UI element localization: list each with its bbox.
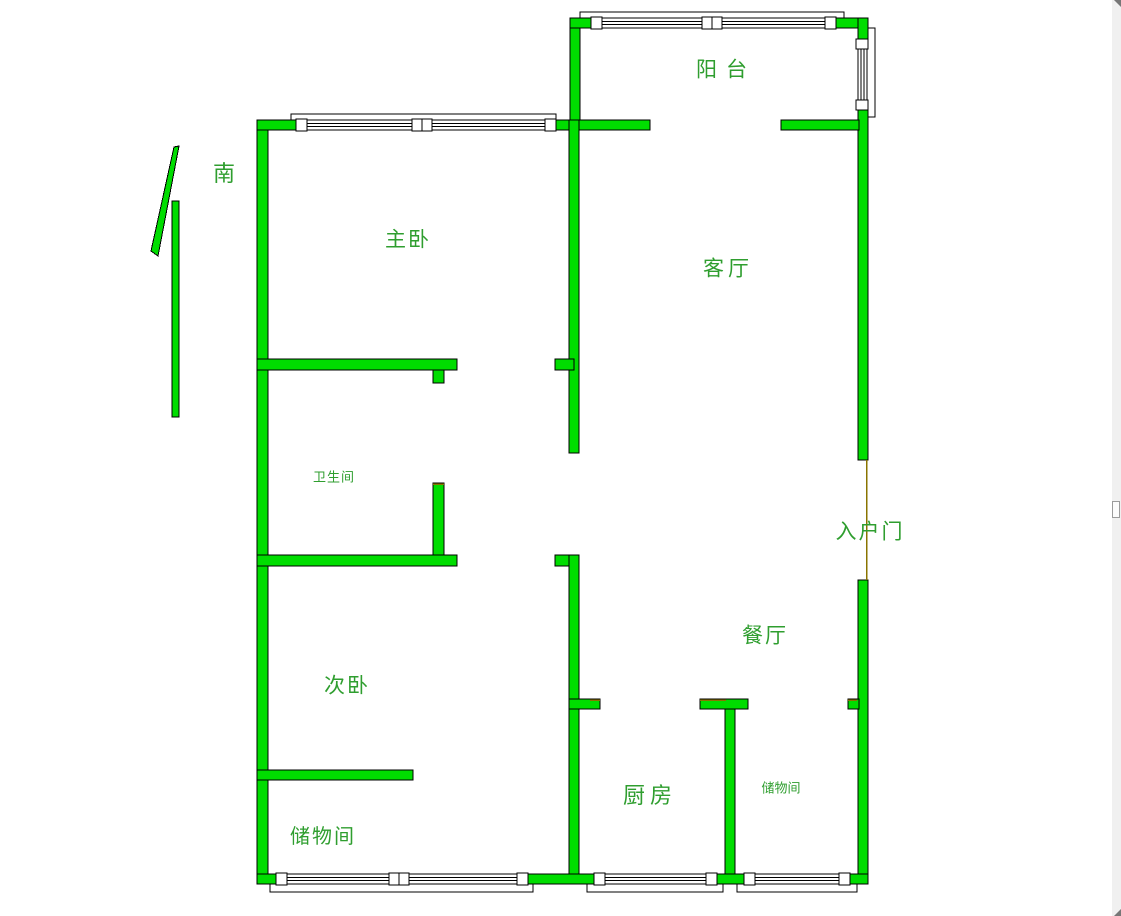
- wall-bottom-1: [257, 874, 277, 884]
- room-label-dining-room: 餐厅: [742, 626, 788, 647]
- floorplan-page: { "title": "户型图", "colors": { "wall_fill…: [0, 0, 1121, 916]
- window-bottom-storage: [744, 873, 850, 885]
- scrollbar-up-arrow-icon[interactable]: [1114, 0, 1121, 7]
- wall-bottom-3: [717, 874, 745, 884]
- vertical-scrollbar[interactable]: [1112, 0, 1121, 916]
- wall-balcony-northeast: [858, 18, 868, 40]
- wall-kitchen-west: [569, 555, 579, 884]
- wall-master-bottom: [257, 359, 457, 370]
- wall-balcony-west: [570, 18, 580, 130]
- label-entrance-door: 入户门: [836, 522, 905, 543]
- door-marks: [433, 460, 867, 700]
- wall-master-top-left: [257, 120, 297, 130]
- walls: [257, 18, 868, 884]
- scrollbar-thumb[interactable]: [1112, 501, 1120, 518]
- room-label-storage-west: 储物间: [290, 826, 356, 846]
- wall-bedroom2-bottom: [257, 770, 413, 780]
- room-label-second-bedroom: 次卧: [324, 676, 370, 697]
- wall-balcony-top-left: [570, 18, 592, 28]
- floorplan-svg: [0, 0, 1121, 916]
- room-label-master-bedroom: 主卧: [385, 230, 431, 251]
- wall-west: [257, 120, 268, 884]
- wall-bottom-4: [850, 874, 868, 884]
- scrollbar-down-arrow-icon[interactable]: [1114, 909, 1121, 916]
- wall-master-door-stub: [555, 359, 574, 370]
- room-label-balcony: 阳台: [696, 60, 756, 81]
- wall-balcony-divider-right: [781, 120, 859, 130]
- room-label-living-room: 客厅: [703, 259, 753, 280]
- compass-south-label: 南: [213, 164, 235, 186]
- room-label-storage-middle: 储物间: [761, 783, 800, 796]
- window-master-top: [296, 119, 556, 131]
- wall-bottom-2: [528, 874, 595, 884]
- wall-bathroom-bottom: [257, 555, 457, 566]
- window-bottom-west: [276, 873, 528, 885]
- room-label-kitchen: 厨房: [623, 786, 677, 808]
- wall-living-west: [569, 120, 579, 453]
- wall-storage-divider: [725, 709, 735, 884]
- room-label-bathroom: 卫生间: [313, 472, 355, 485]
- wall-bathroom-right-lower: [433, 483, 444, 566]
- south-arrow-shaft: [172, 201, 179, 417]
- wall-east-upper: [858, 109, 868, 460]
- wall-balcony-divider-left: [570, 120, 650, 130]
- window-bottom-kitchen: [594, 873, 717, 885]
- wall-east-lower: [858, 580, 868, 884]
- wall-bathroom-right-upper: [433, 370, 444, 383]
- window-balcony-top: [591, 17, 836, 29]
- window-balcony-east: [856, 39, 868, 110]
- south-arrow-icon: [151, 146, 179, 417]
